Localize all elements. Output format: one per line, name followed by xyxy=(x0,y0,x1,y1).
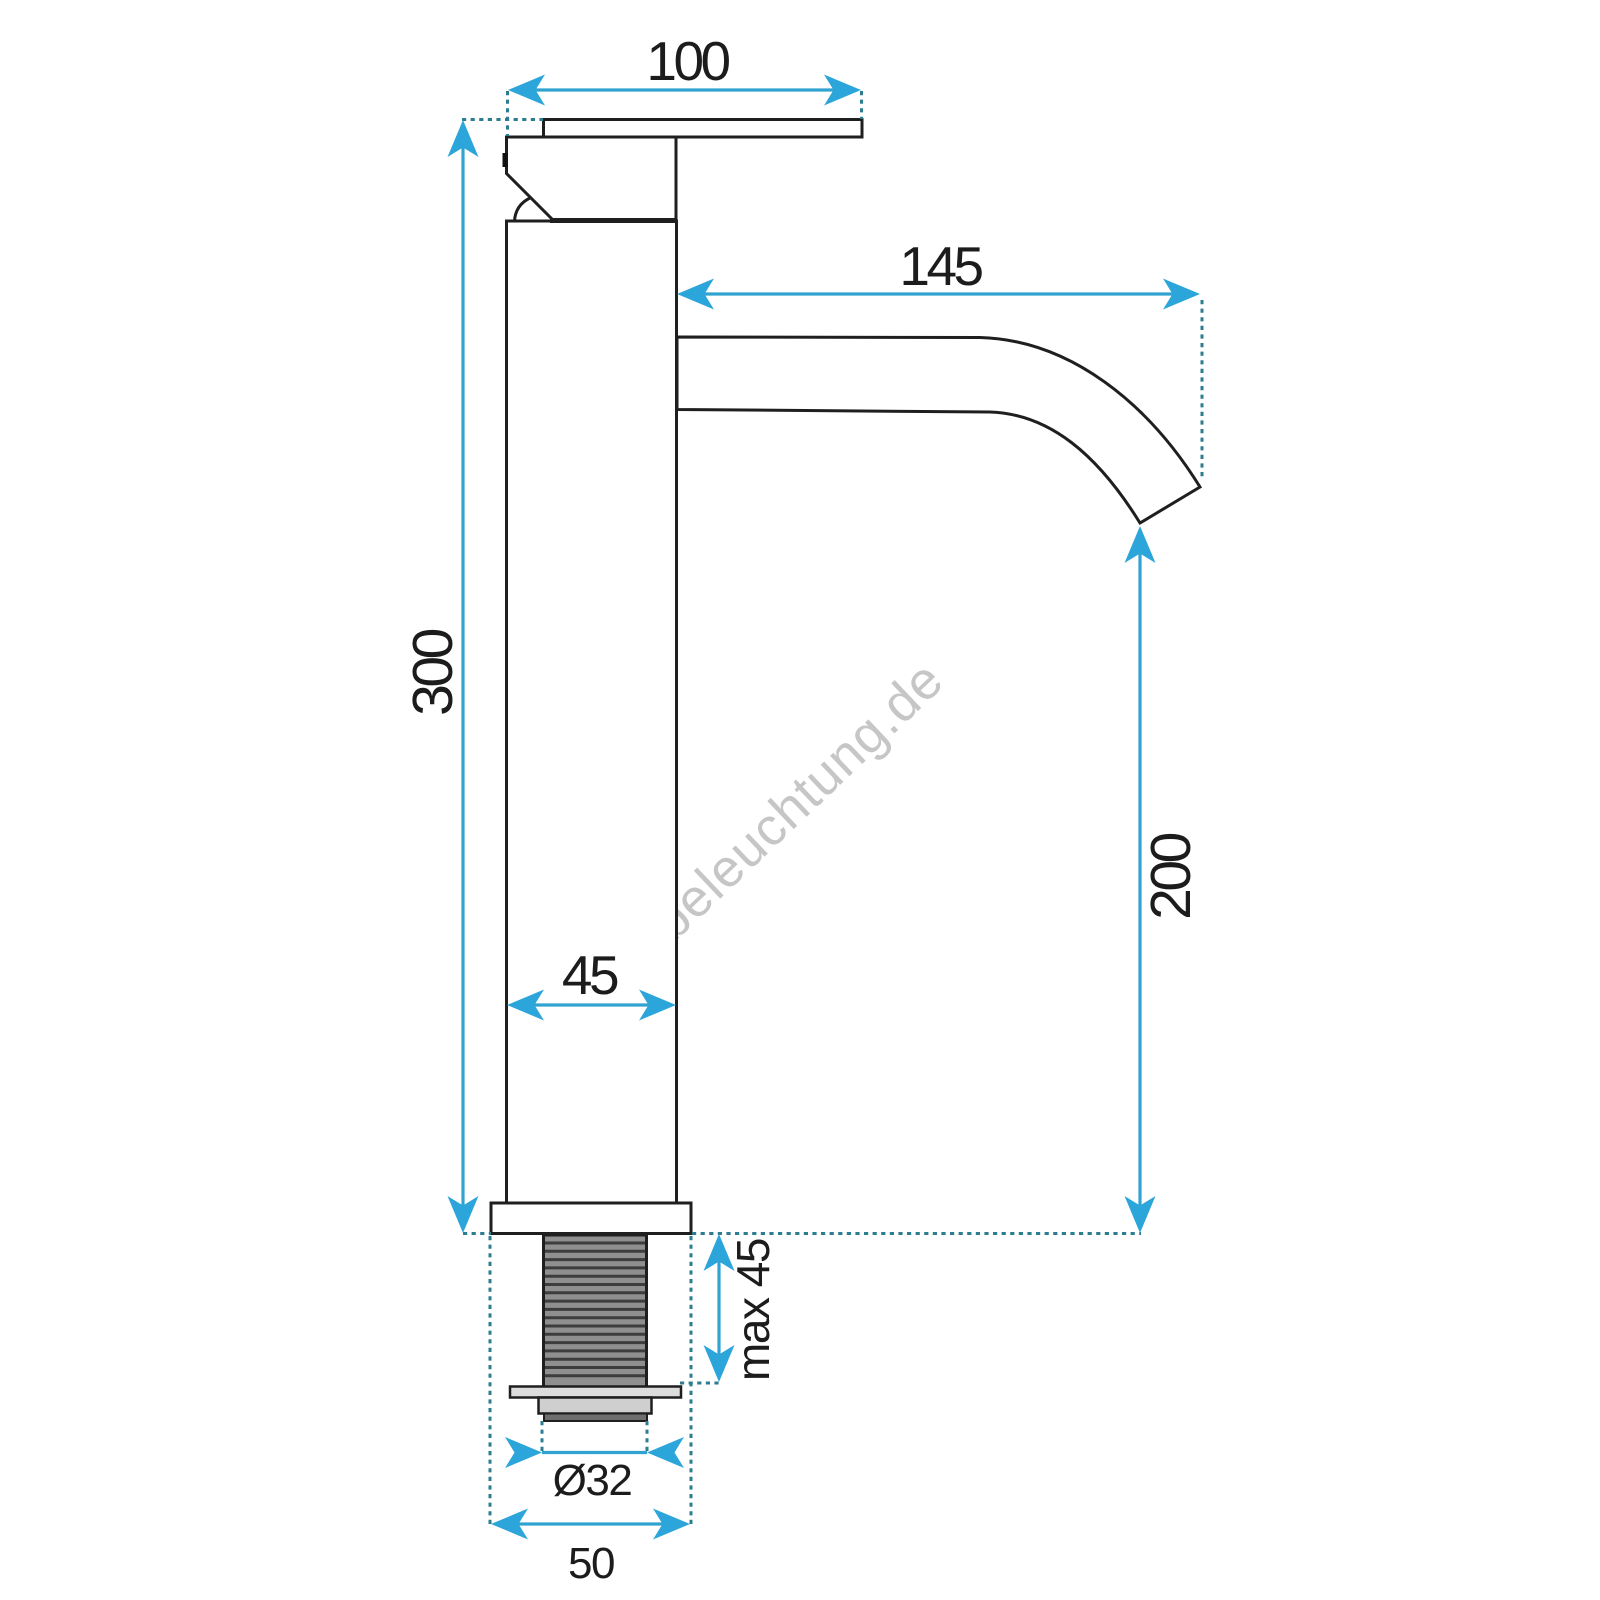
svg-text:Ø32: Ø32 xyxy=(553,1456,632,1505)
svg-text:max 45: max 45 xyxy=(727,1239,779,1381)
svg-text:50: 50 xyxy=(568,1539,614,1588)
svg-text:145: 145 xyxy=(899,235,982,297)
svg-text:300: 300 xyxy=(401,629,465,715)
svg-text:100: 100 xyxy=(646,30,729,92)
svg-text:45: 45 xyxy=(562,944,618,1006)
svg-text:200: 200 xyxy=(1139,833,1203,919)
